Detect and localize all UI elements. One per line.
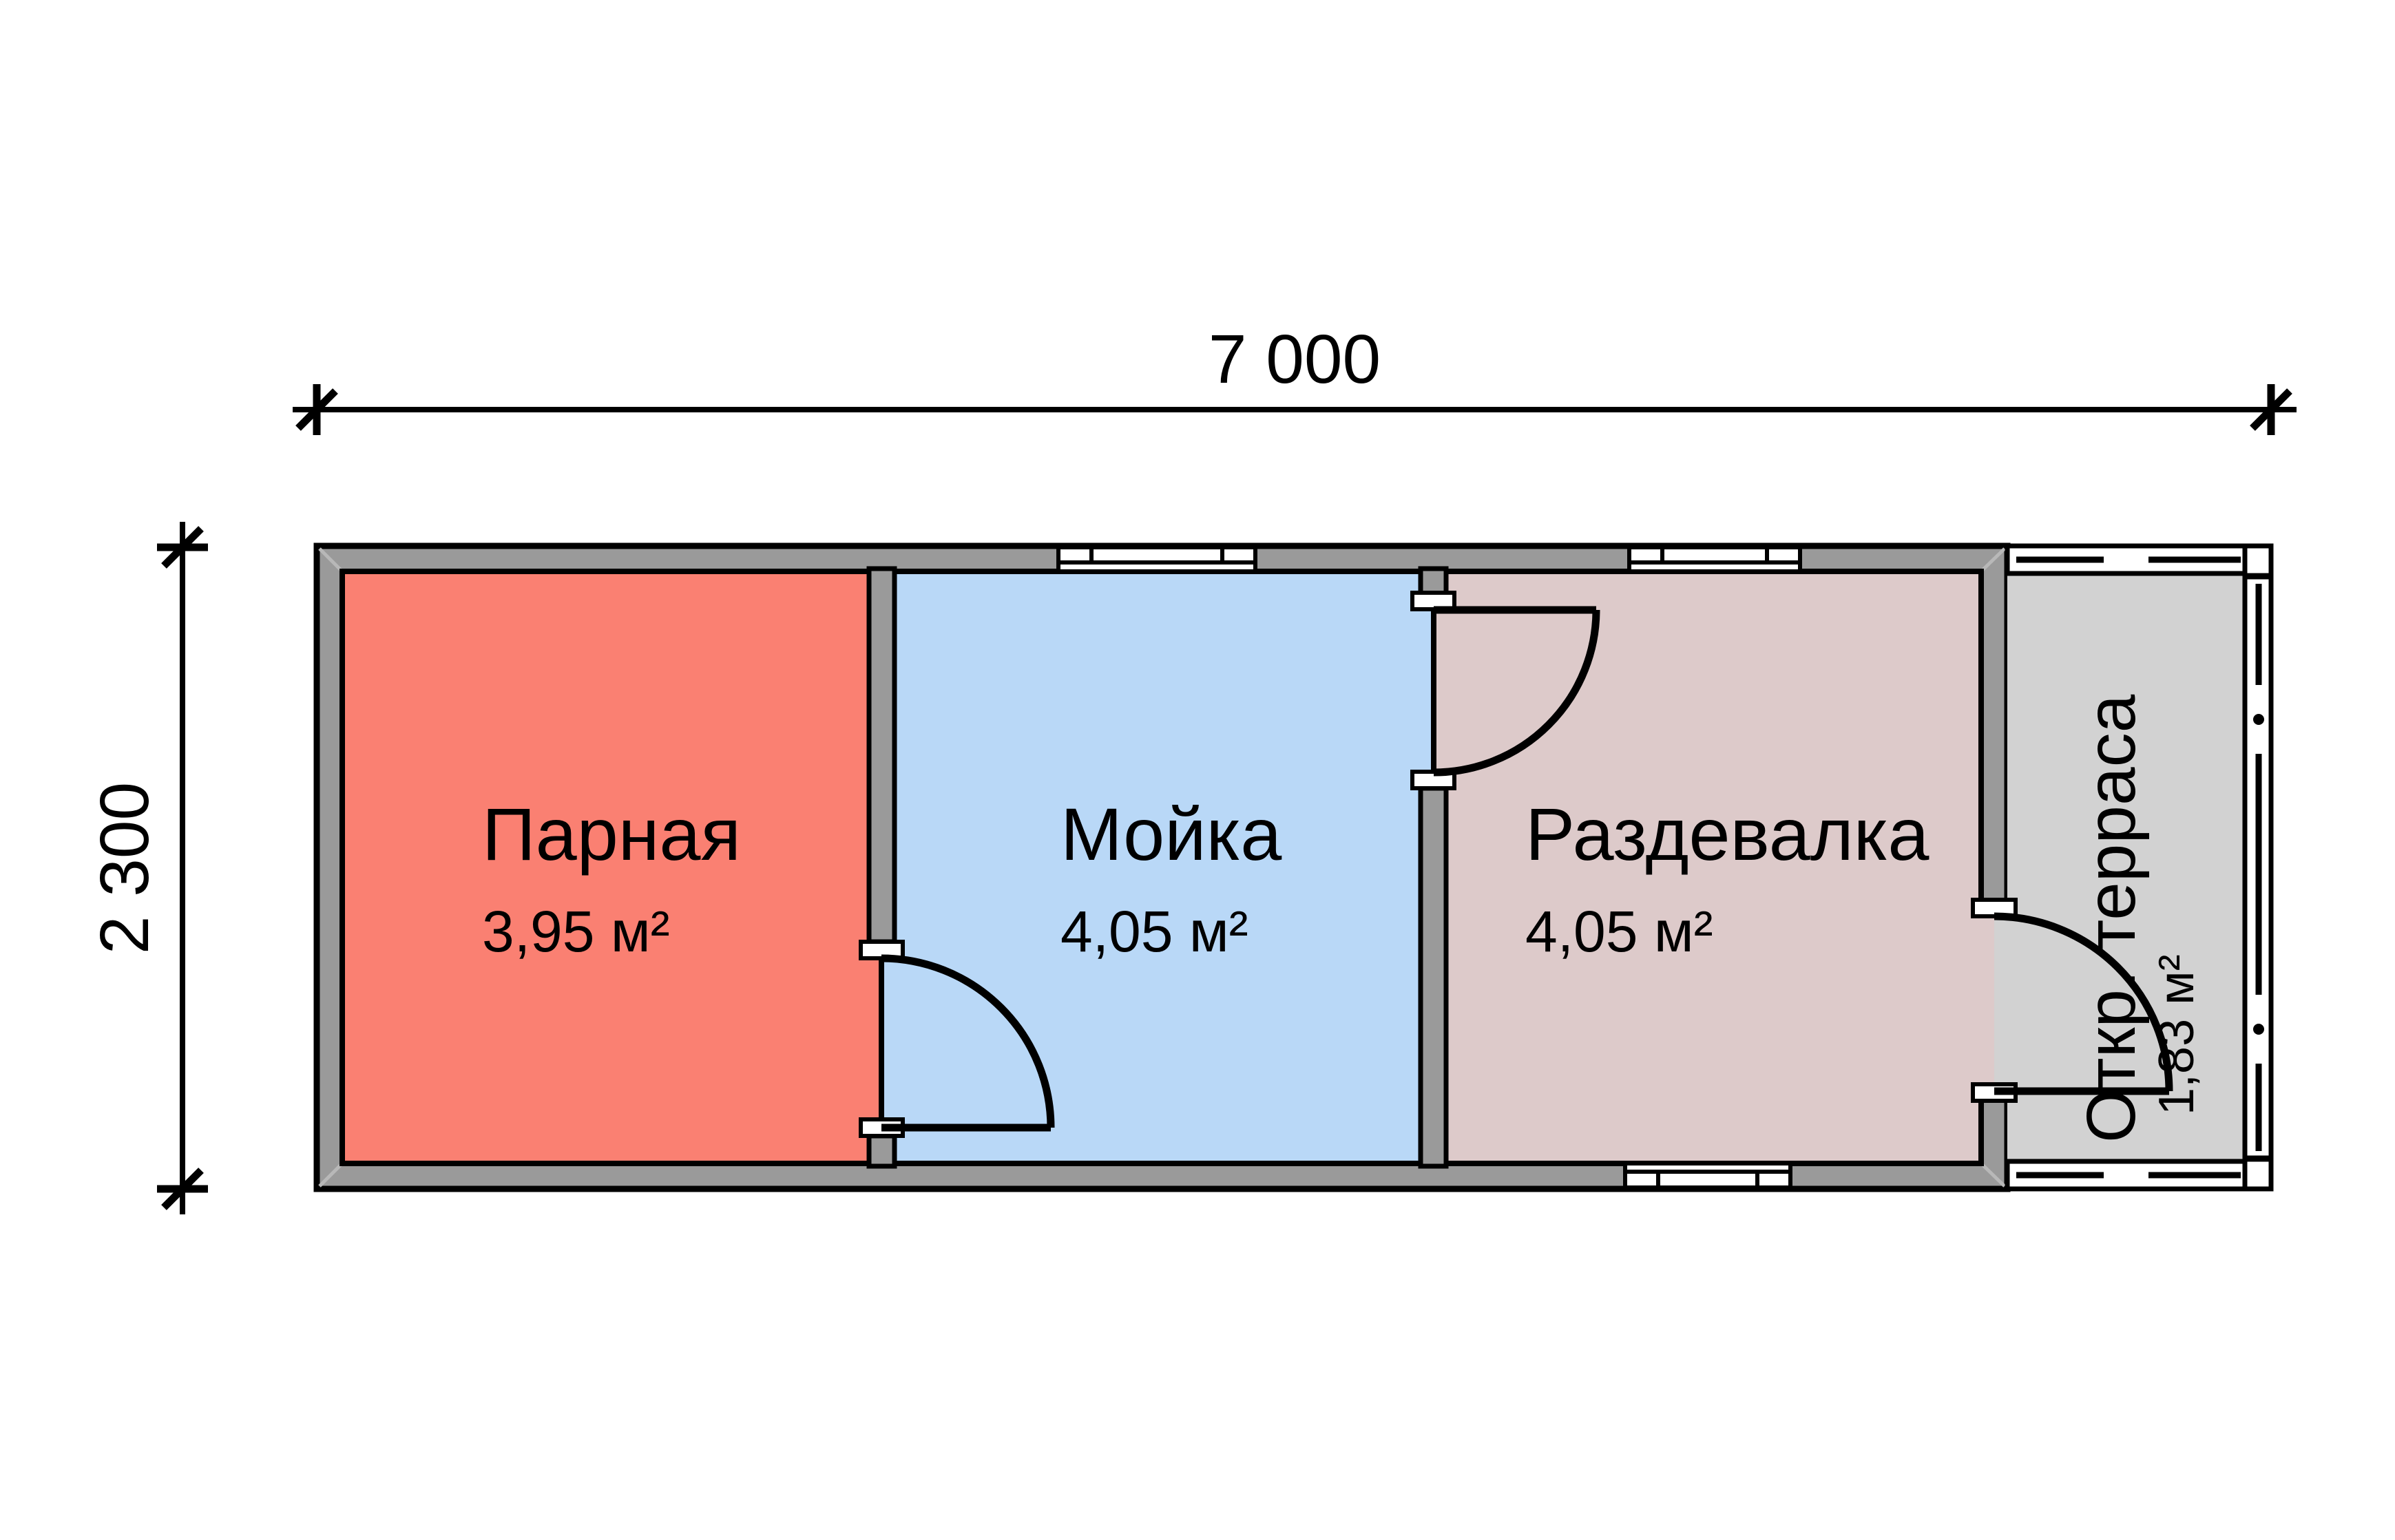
- room-razdevalka-area: 4,05 м²: [1525, 899, 1713, 964]
- room-terrace-area: 1,83 м²: [2149, 954, 2204, 1115]
- partition-parnaya-moyka-upper: [869, 569, 895, 942]
- room-moyka-label: Мойка: [1060, 792, 1282, 876]
- partition-moyka-razdevalka-lower: [1421, 788, 1446, 1166]
- right-rail-dot-2: [2253, 1024, 2264, 1035]
- floor-plan-drawing: 7 000 2 300 Парная 3,95 м² Мойка 4,05 м²…: [0, 0, 2395, 1540]
- room-parnaya-area: 3,95 м²: [482, 899, 670, 964]
- window-razdevalka-top-frame: [1629, 547, 1800, 571]
- partition-moyka-razdevalka-stub: [1421, 569, 1446, 594]
- window-moyka-frame: [1058, 547, 1255, 571]
- room-parnaya-label: Парная: [482, 792, 741, 876]
- partition-parnaya-moyka-lower: [869, 1136, 895, 1166]
- dim-height-label: 2 300: [86, 782, 163, 954]
- room-terrace-label: Откр. терраса: [2073, 694, 2150, 1143]
- right-rail-dot-1: [2253, 714, 2264, 725]
- room-razdevalka-label: Раздевалка: [1525, 792, 1929, 876]
- floor-plan-page: 7 000 2 300 Парная 3,95 м² Мойка 4,05 м²…: [0, 0, 2395, 1540]
- terrace-door-opening-inner: [1978, 916, 1994, 1084]
- dim-width-label: 7 000: [1209, 321, 1381, 398]
- window-razdevalka-bottom-frame: [1625, 1163, 1790, 1188]
- room-moyka-area: 4,05 м²: [1060, 899, 1248, 964]
